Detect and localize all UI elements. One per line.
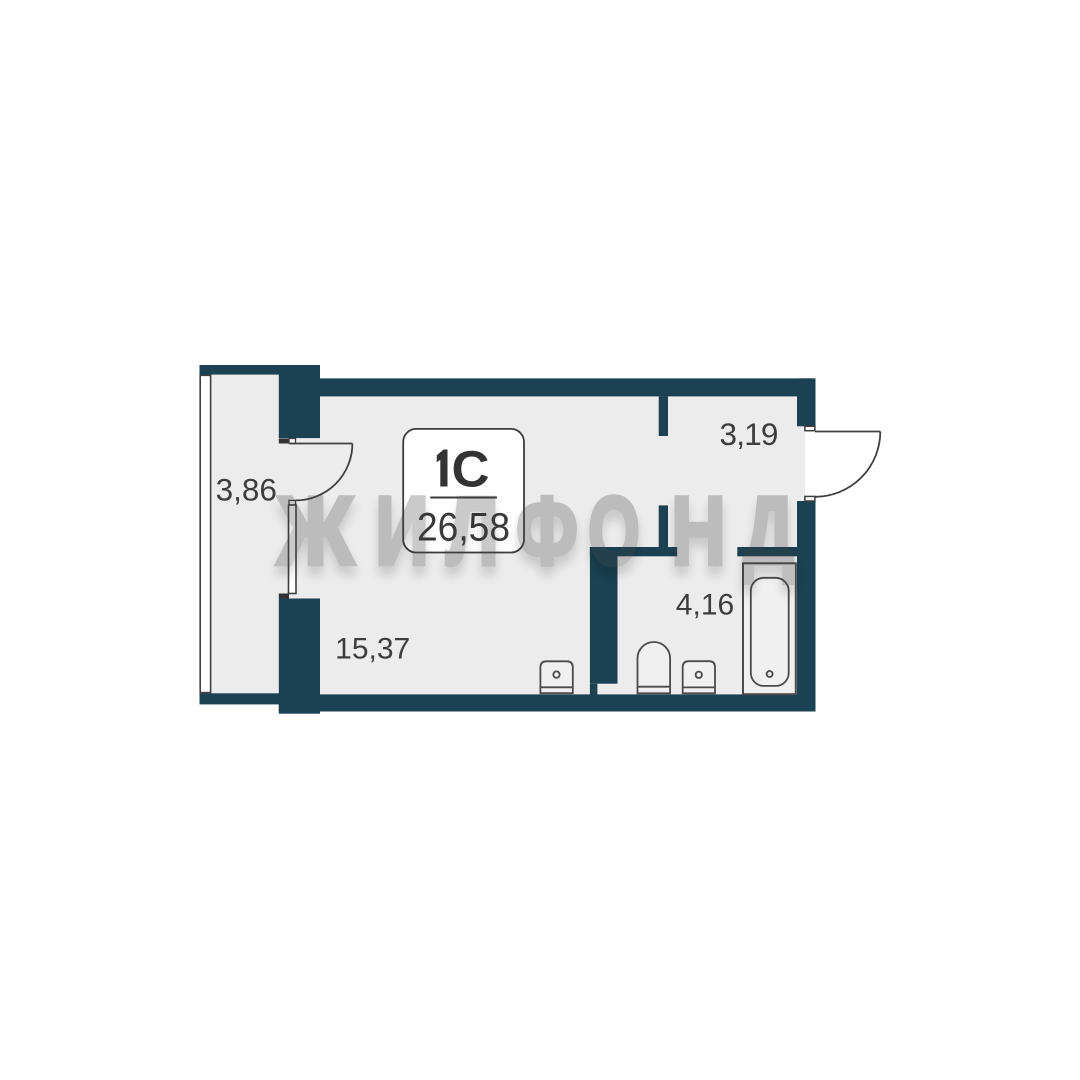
svg-text:Л: Л bbox=[446, 478, 499, 585]
svg-text:4,16: 4,16 bbox=[676, 588, 734, 621]
svg-text:И: И bbox=[375, 478, 429, 585]
svg-text:3,86: 3,86 bbox=[216, 471, 277, 507]
svg-text:3,19: 3,19 bbox=[720, 416, 778, 452]
svg-text:Н: Н bbox=[671, 478, 726, 585]
svg-text:Ж: Ж bbox=[276, 478, 354, 585]
svg-text:Ф: Ф bbox=[516, 478, 578, 585]
svg-text:15,37: 15,37 bbox=[335, 632, 410, 665]
svg-text:О: О bbox=[588, 478, 640, 585]
svg-text:Д: Д bbox=[743, 478, 794, 585]
